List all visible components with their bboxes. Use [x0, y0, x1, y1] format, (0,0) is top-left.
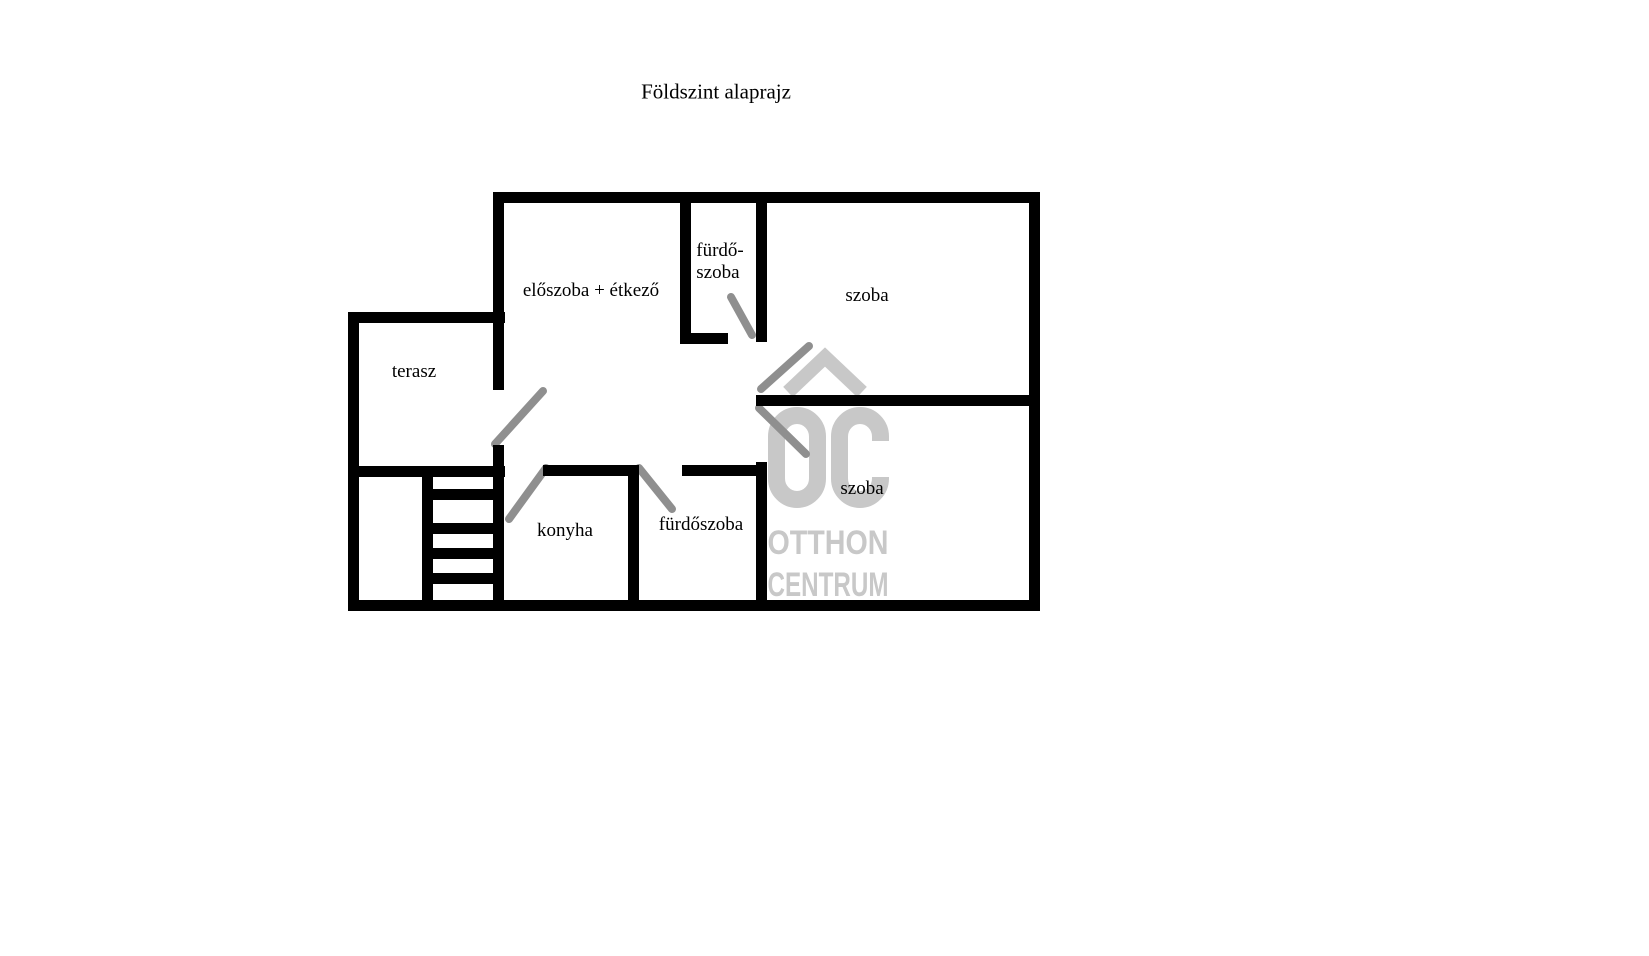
staircase [433, 489, 493, 584]
wall-bath-top-right [756, 192, 767, 342]
watermark-text-centrum: CENTRUM [768, 566, 889, 604]
stair-tread [433, 548, 493, 559]
wall-outer-left [348, 312, 359, 611]
room-label-szoba-bottom: szoba [840, 478, 883, 500]
wall-hall-left-lower [493, 445, 504, 611]
floorplan-page: Földszint alaprajz OTTHON CENTRUM előszo… [0, 0, 1649, 956]
room-label-terasz: terasz [392, 361, 436, 383]
wall-konyha-right [628, 465, 639, 611]
terasz-door [495, 391, 543, 444]
wall-bath-top-bottom [680, 333, 728, 344]
room-label-furdoszoba-bottom: fürdőszoba [659, 514, 743, 536]
wall-stairs-left-rail [422, 466, 433, 611]
stair-tread [433, 489, 493, 500]
watermark-text-otthon: OTTHON [768, 524, 889, 562]
floorplan-diagram: OTTHON CENTRUM [0, 0, 1649, 956]
stair-tread [433, 573, 493, 584]
wall-konyha-top [543, 465, 639, 476]
wall-bottom [348, 600, 1040, 611]
bath-top-door [731, 297, 752, 335]
wall-bath-top-left [680, 192, 691, 344]
bath-bottom-door [639, 468, 672, 509]
stair-tread [433, 523, 493, 534]
room-label-eloszoba-etkezo: előszoba + étkező [523, 280, 659, 302]
watermark-roof-icon [788, 357, 862, 392]
wall-bath-bottom-top [682, 465, 767, 476]
wall-bath-bottom-right [756, 462, 767, 611]
watermark-letter-c-notch [869, 441, 895, 477]
room-label-konyha: konyha [537, 520, 593, 542]
room-label-szoba-top: szoba [845, 285, 888, 307]
wall-middle [756, 395, 1040, 406]
konyha-door [509, 468, 546, 519]
wall-terasz-top [348, 312, 505, 323]
room-label-furdoszoba-top: fürdő- szoba [696, 240, 743, 284]
wall-hall-left-upper [493, 192, 504, 390]
